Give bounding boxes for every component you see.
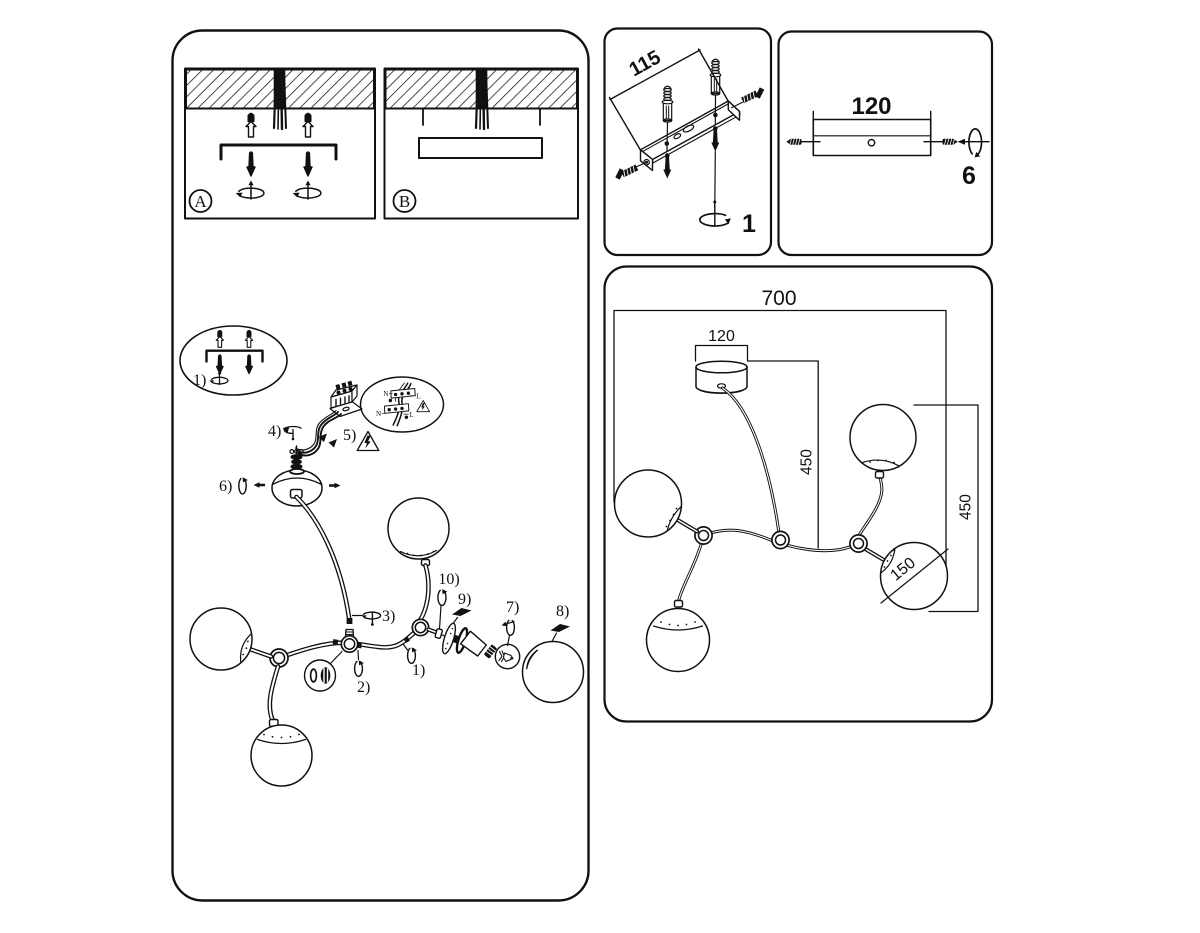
svg-text:B: B [399,192,410,211]
svg-text:3): 3) [382,608,395,625]
svg-text:4): 4) [268,423,281,440]
svg-text:10): 10) [438,571,459,588]
svg-text:L: L [416,393,420,401]
svg-text:2): 2) [357,679,370,696]
svg-text:450: 450 [799,449,816,475]
svg-text:450: 450 [958,494,975,520]
svg-text:115: 115 [626,46,665,81]
svg-text:9): 9) [458,591,471,608]
svg-text:N: N [376,410,382,418]
svg-text:700: 700 [761,287,796,310]
svg-text:6: 6 [962,162,976,190]
svg-text:6): 6) [219,478,232,495]
svg-text:N: N [383,390,389,398]
svg-text:1): 1) [412,662,425,679]
svg-text:120: 120 [708,328,735,345]
svg-text:1): 1) [193,372,206,389]
svg-text:7): 7) [506,599,519,616]
svg-text:L: L [409,411,413,419]
svg-text:1: 1 [742,210,756,238]
svg-text:120: 120 [851,93,891,120]
svg-text:A: A [194,192,207,211]
svg-text:5): 5) [343,427,356,444]
svg-text:8): 8) [556,603,569,620]
